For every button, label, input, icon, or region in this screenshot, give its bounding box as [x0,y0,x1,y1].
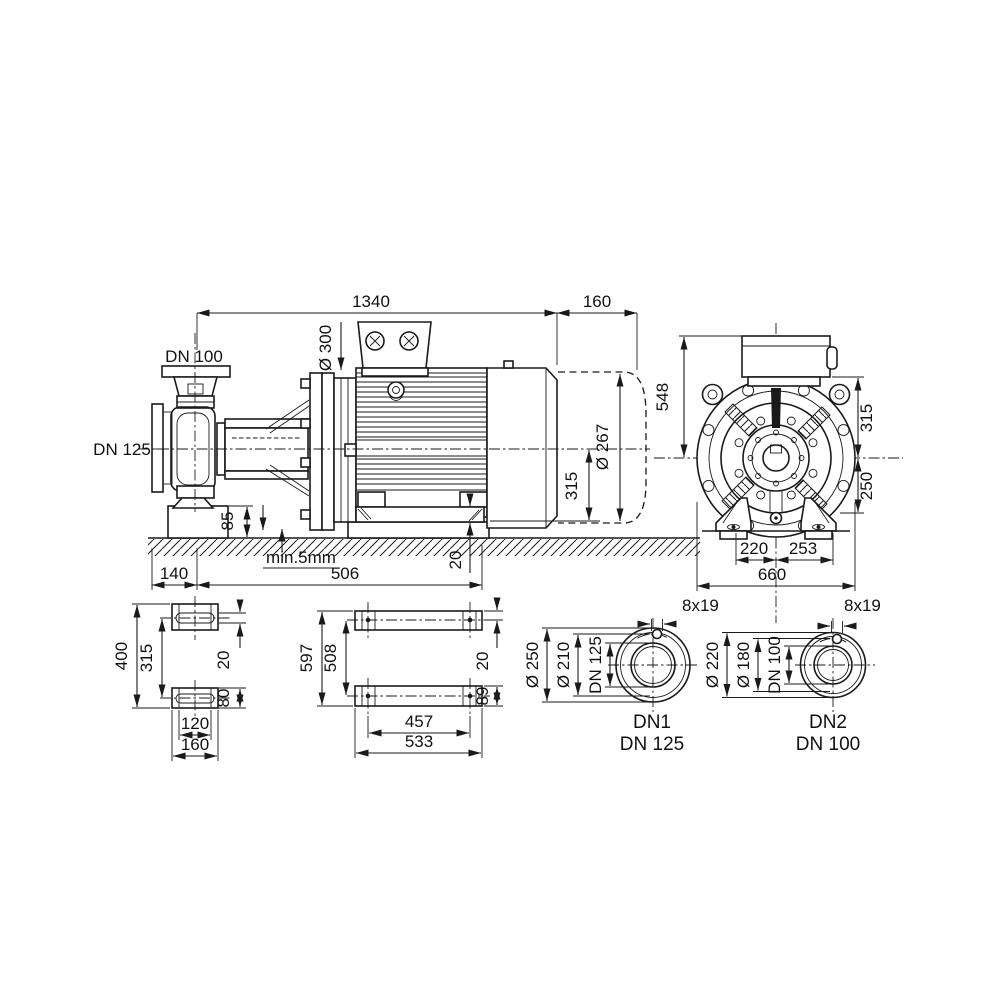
dim-motor-diameter-label: Ø 267 [593,424,612,470]
dim-width-label: 660 [758,565,786,584]
side-view: 1340 160 Ø 300 DN 100 DN 125 Ø 267 315 8… [93,292,700,590]
dim-suction-offset-label: 140 [160,564,188,583]
pump-dimension-drawing: 1340 160 Ø 300 DN 100 DN 125 Ø 267 315 8… [0,0,1000,1000]
fan-cover [487,361,557,528]
motor-feet-plan: 597 508 20 89 457 533 [297,599,503,758]
dim-hole-distance-label: 457 [405,712,433,731]
pump-casing [171,407,215,508]
pump-feet-plan: 400 315 20 80 120 160 [112,596,246,761]
bolt-holes-label: 8x19 [844,596,881,615]
terminal-box-side [358,322,431,376]
suction-flange [152,404,172,492]
dim-center-to-top-label: 315 [857,404,876,432]
label-suction-dn125: DN 125 [93,440,151,459]
bearing-bracket [217,400,309,496]
note-grout-label: min.5mm [266,548,336,567]
dim-centers-label: 315 [137,644,156,672]
discharge-flange [162,366,230,408]
top-rib [771,388,781,428]
dim-outer-width-label: 533 [405,732,433,751]
lifting-eyebolt-icon [388,382,404,401]
port-size-label: DN 125 [620,734,684,755]
motor-foundation-strip [348,522,489,538]
dim-inner-width-label: 120 [181,714,209,733]
dim-foot-width-label: 89 [473,687,492,706]
dim-center-to-foot-label: 250 [857,472,876,500]
dim-outer-label: Ø 250 [523,642,542,688]
flange-bolt [301,510,310,519]
flange-dn2: 8x19 Ø 220 Ø 180 DN 100 DN2 DN 100 [703,596,881,755]
dim-centers-label: 508 [321,644,340,672]
dim-bolt-circle-label: Ø 180 [734,642,753,688]
dim-overall-label: 597 [297,644,316,672]
dim-overall-label: 400 [112,642,131,670]
dim-foot-width-label: 80 [214,689,233,708]
drawing-canvas: 1340 160 Ø 300 DN 100 DN 125 Ø 267 315 8… [0,0,1000,1000]
dim-hole-offset-label: 20 [473,652,492,671]
bolt-holes-label: 8x19 [682,596,719,615]
terminal-box-front [742,336,837,386]
flange-bolt-hole [653,630,662,639]
flange-bolt-hole [833,635,842,644]
dim-flange-diameter-label: Ø 300 [316,325,335,371]
flange-dn1: 8x19 Ø 250 Ø 210 DN 125 DN1 DN 125 [523,596,719,755]
ground-hatch [148,539,700,556]
pump-pedestal [173,498,213,508]
label-discharge-dn100: DN 100 [165,347,223,366]
dim-bore-label: DN 125 [586,636,605,694]
dim-height-top-label: 548 [653,383,672,411]
port-id-label: DN1 [633,712,671,733]
dim-foot-distance-label: 506 [331,564,359,583]
flange-bolt [301,379,310,388]
port-size-label: DN 100 [796,734,860,755]
base-frame [356,507,484,522]
dim-slot-width-label: 20 [214,651,233,670]
dim-foundation-height-label: 85 [218,512,237,531]
motor-foot-bar-upper [355,611,482,630]
dim-bolt-circle-label: Ø 210 [554,642,573,688]
dim-outer-label: Ø 220 [703,642,722,688]
dim-outer-width-label: 160 [181,735,209,754]
flange-bolt [301,419,310,428]
dim-shaft-height-label: 315 [562,472,581,500]
dim-bore-label: DN 100 [765,636,784,694]
dim-foot-left-label: 220 [740,539,768,558]
dim-total-length-label: 1340 [352,292,390,311]
flange-bolt [301,458,310,467]
front-view: 548 315 250 220 253 660 [653,323,903,623]
cable-gland [827,347,837,369]
port-id-label: DN2 [809,712,847,733]
dim-foot-right-label: 253 [789,539,817,558]
dim-baseplate-thickness-label: 20 [446,551,465,570]
dim-removal-label: 160 [583,292,611,311]
